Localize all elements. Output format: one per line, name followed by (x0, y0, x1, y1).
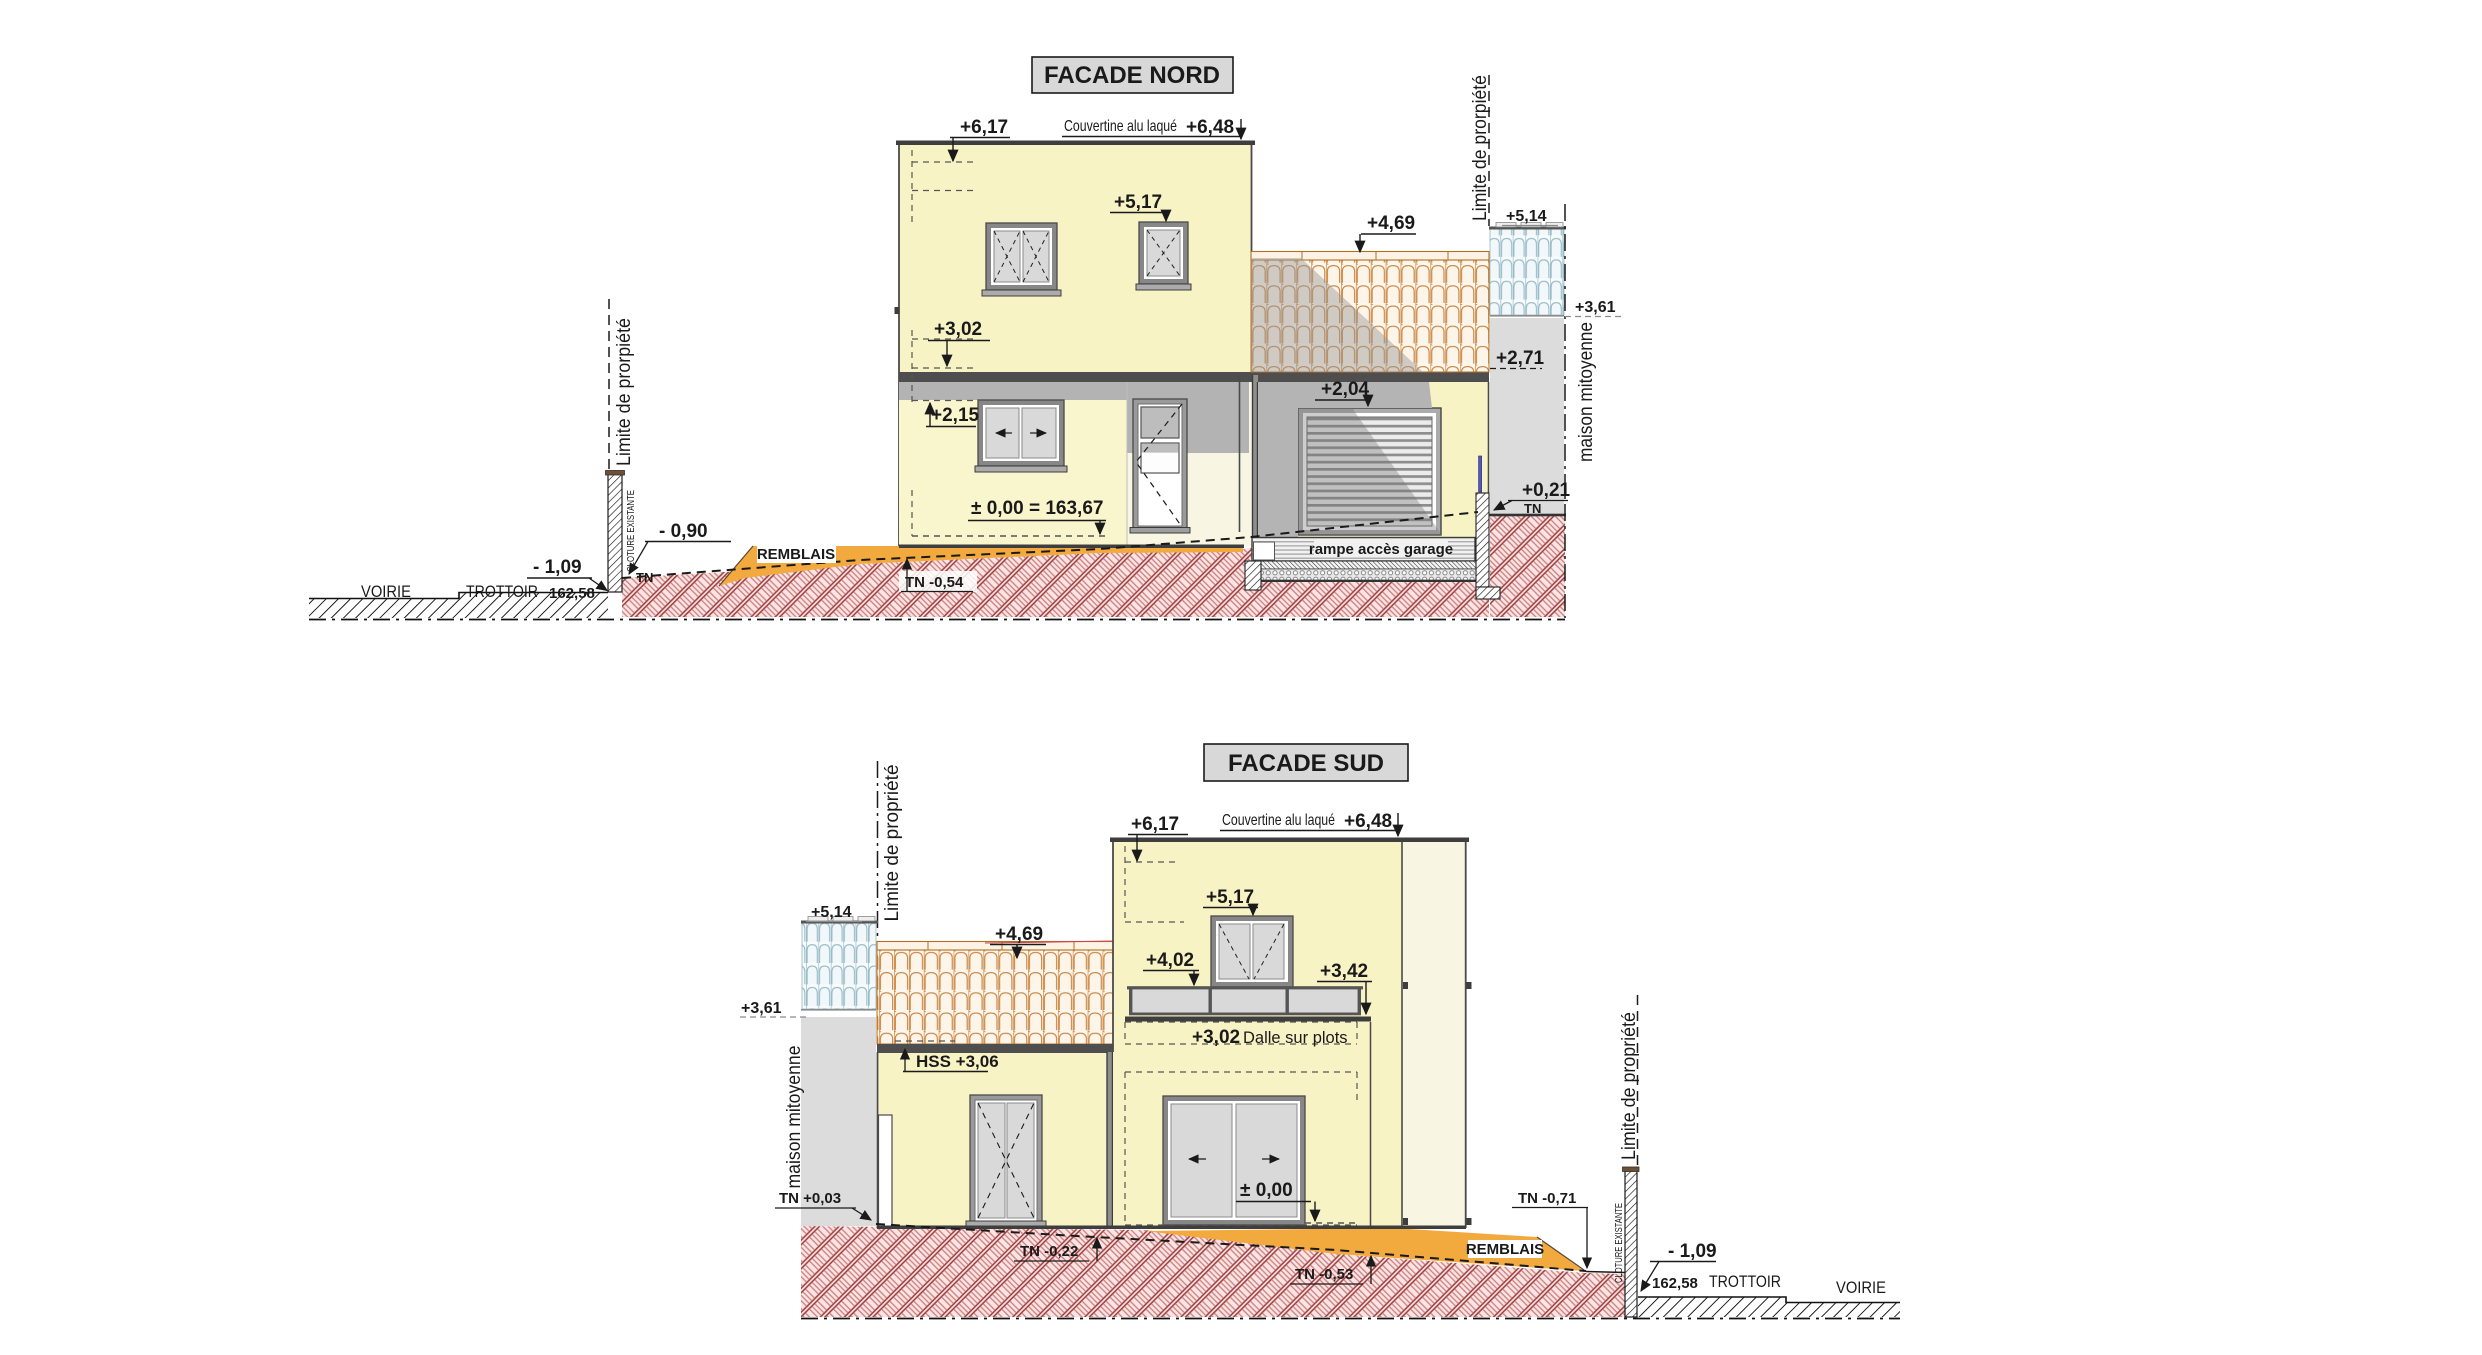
svg-text:REMBLAIS: REMBLAIS (757, 546, 835, 563)
svg-text:maison mitoyenne: maison mitoyenne (1576, 322, 1597, 462)
svg-text:+0,21: +0,21 (1522, 480, 1571, 501)
svg-text:162,58: 162,58 (549, 585, 595, 602)
svg-text:+3,42: +3,42 (1320, 961, 1368, 982)
svg-text:+4,02: +4,02 (1146, 950, 1194, 971)
svg-text:CLOTURE EXISTANTE: CLOTURE EXISTANTE (626, 490, 637, 572)
svg-text:+2,71: +2,71 (1496, 348, 1545, 369)
svg-text:+6,17: +6,17 (960, 117, 1008, 138)
svg-text:+5,14: +5,14 (1506, 208, 1547, 225)
svg-text:+2,15: +2,15 (931, 405, 980, 426)
svg-text:Couvertine alu laqué: Couvertine alu laqué (1222, 812, 1335, 829)
svg-text:TN -0,54: TN -0,54 (905, 574, 964, 591)
svg-text:+3,61: +3,61 (1575, 299, 1616, 316)
svg-text:CLOTURE EXISTANTE: CLOTURE EXISTANTE (1614, 1203, 1625, 1283)
svg-text:VOIRIE: VOIRIE (1836, 1278, 1886, 1297)
svg-text:Limite de prorpiété: Limite de prorpiété (614, 318, 635, 466)
svg-text:+3,02: +3,02 (1192, 1027, 1240, 1048)
svg-text:TN -0,71: TN -0,71 (1518, 1190, 1576, 1207)
svg-text:+3,61: +3,61 (741, 1000, 782, 1017)
svg-text:+3,02: +3,02 (934, 319, 982, 340)
svg-text:REMBLAIS: REMBLAIS (1466, 1241, 1544, 1258)
svg-text:+5,17: +5,17 (1114, 192, 1162, 213)
svg-text:TN +0,03: TN +0,03 (779, 1190, 841, 1207)
svg-text:TN -0,22: TN -0,22 (1020, 1243, 1078, 1260)
svg-text:Limite de propriété: Limite de propriété (1619, 1012, 1640, 1160)
svg-text:+2,04: +2,04 (1321, 379, 1370, 400)
svg-text:- 0,90: - 0,90 (659, 521, 708, 542)
svg-text:TROTTOIR: TROTTOIR (466, 582, 538, 601)
svg-text:rampe accès garage: rampe accès garage (1309, 541, 1453, 558)
svg-text:+6,17: +6,17 (1131, 814, 1179, 835)
svg-text:+5,17: +5,17 (1206, 887, 1254, 908)
svg-text:+6,48: +6,48 (1186, 117, 1234, 138)
svg-text:Limite de propriété: Limite de propriété (882, 765, 903, 922)
svg-text:TROTTOIR: TROTTOIR (1709, 1272, 1781, 1291)
svg-text:FACADE SUD: FACADE SUD (1228, 750, 1384, 777)
svg-text:Dalle sur plots: Dalle sur plots (1243, 1029, 1348, 1047)
svg-text:TN: TN (1524, 501, 1541, 516)
svg-text:TN: TN (636, 570, 653, 585)
svg-text:FACADE NORD: FACADE NORD (1044, 62, 1220, 89)
svg-text:maison mitoyenne: maison mitoyenne (784, 1046, 805, 1189)
svg-text:162,58: 162,58 (1652, 1275, 1698, 1292)
svg-text:HSS +3,06: HSS +3,06 (916, 1052, 999, 1071)
svg-text:+6,48: +6,48 (1344, 811, 1392, 832)
svg-text:± 0,00: ± 0,00 (1240, 1180, 1293, 1201)
svg-text:VOIRIE: VOIRIE (361, 582, 411, 601)
svg-text:TN -0,53: TN -0,53 (1295, 1266, 1353, 1283)
svg-text:± 0,00 = 163,67: ± 0,00 = 163,67 (971, 498, 1103, 519)
svg-text:+4,69: +4,69 (1367, 213, 1415, 234)
svg-text:Couvertine alu laqué: Couvertine alu laqué (1064, 118, 1177, 135)
svg-text:- 1,09: - 1,09 (533, 557, 582, 578)
svg-text:Limite de prorpiété: Limite de prorpiété (1470, 75, 1491, 221)
svg-text:- 1,09: - 1,09 (1668, 1241, 1717, 1262)
svg-text:+5,14: +5,14 (811, 904, 852, 921)
